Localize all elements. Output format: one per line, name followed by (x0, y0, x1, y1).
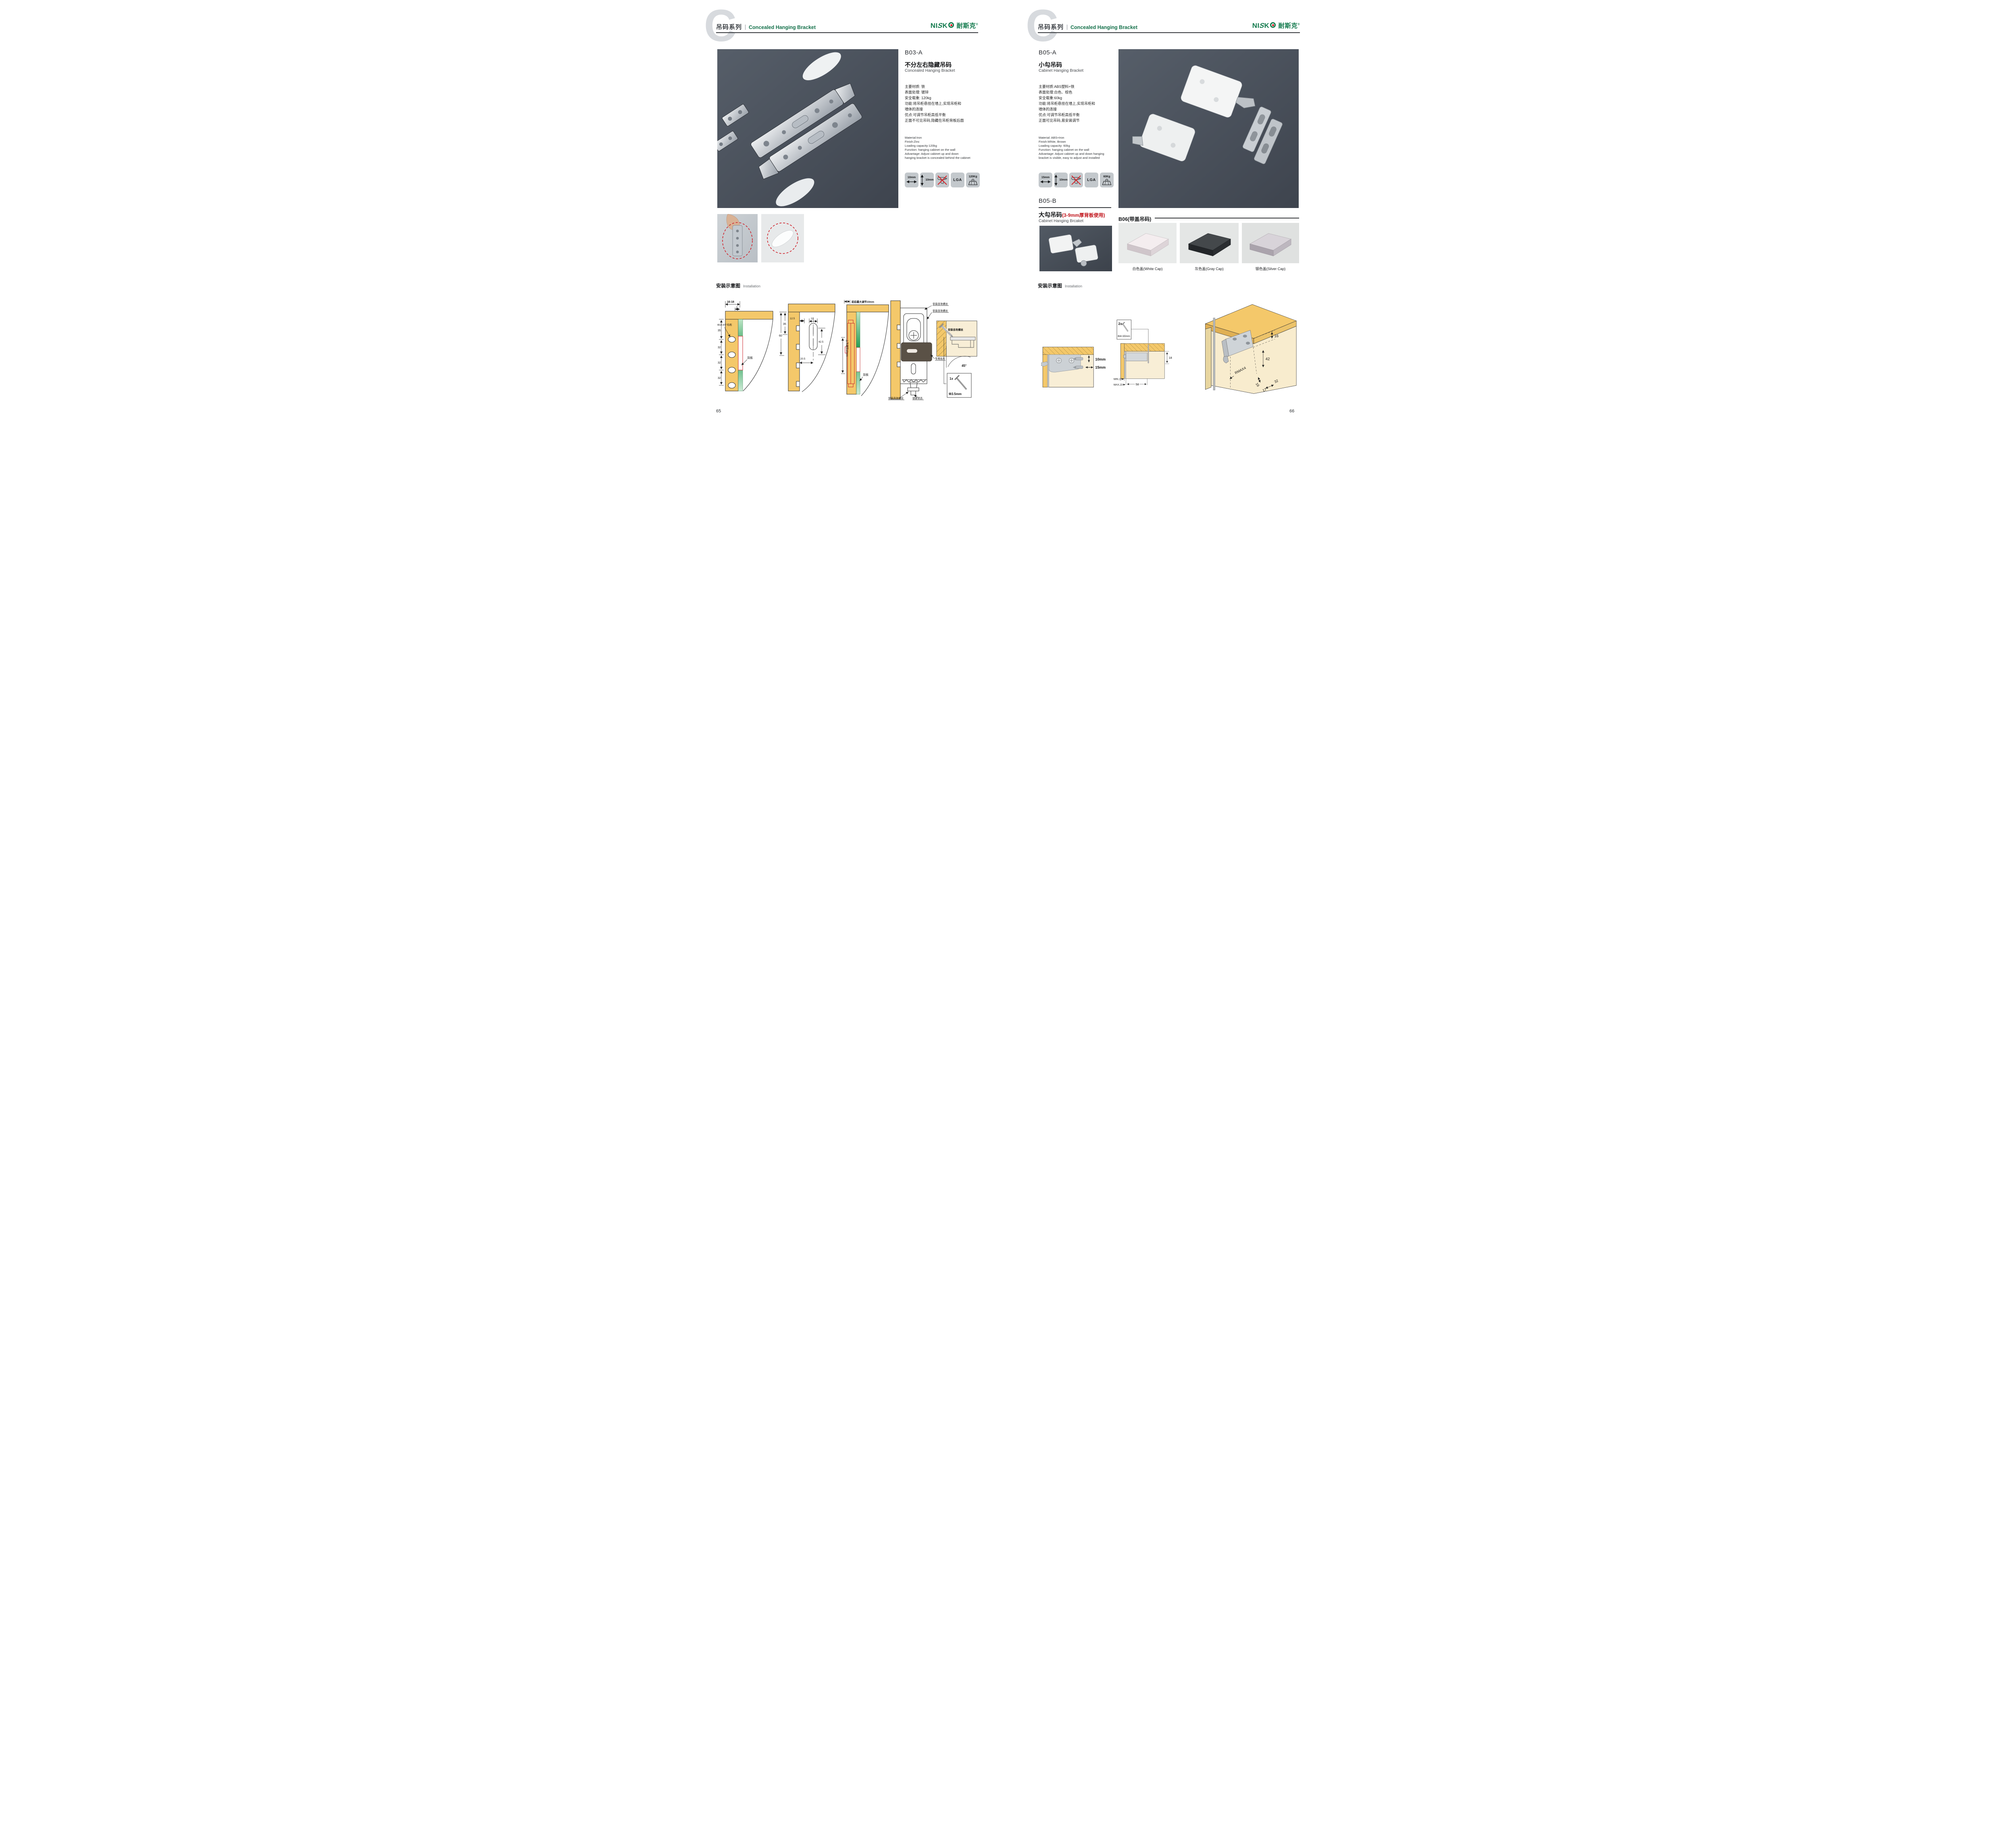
lga-label: LGA (1087, 178, 1096, 182)
diagram-section-holes: 16-18 5 35 32 32 32 Φ10-4个均布 背板 (717, 299, 774, 399)
icon-max-load: 120Kg (966, 173, 980, 187)
cap-photo-white (1118, 223, 1177, 263)
diagram-side-adjust: 10mm 15mm (1041, 341, 1109, 389)
inset-screw-label: 安装自攻螺丝 (948, 328, 963, 331)
plate-label: 专用挂片 (935, 357, 945, 360)
page-number-left: 65 (716, 409, 721, 414)
logo-cn: 耐斯克 (1278, 23, 1297, 29)
series-title-en: Concealed Hanging Bracket (1070, 25, 1137, 30)
dim-label: 5 (736, 306, 738, 309)
thumb-cap-photo (761, 214, 804, 262)
spec-line: 表面处理: 镀锌 (905, 89, 964, 95)
dim-label: 12 (811, 317, 814, 320)
cap-photo-silver (1242, 223, 1299, 263)
vertical-arrow-icon (1054, 175, 1058, 186)
specs-cn: 主要材质:ABS塑料+铁 表面处理:白色、棕色 安全载重:60kg 功能:将吊柜… (1039, 84, 1095, 123)
spec-line: Material: ABS+Iron (1039, 136, 1104, 140)
diagram-adjust-range: 前后最大调节10mm 上下调节10mm 背板 (841, 299, 890, 399)
b06-rule (1155, 218, 1299, 218)
logo-o-icon (1270, 22, 1276, 28)
vertical-arrow-icon (920, 175, 924, 186)
icon-no-drill (1069, 173, 1083, 187)
product-code: B03-A (905, 49, 923, 56)
spec-line: 优点:可调节吊柜高低平衡 (1039, 112, 1095, 118)
icon-width-adjust: 15mm (1039, 173, 1052, 187)
product-code: B05-B (1039, 198, 1056, 204)
dim-label: 42 (1266, 357, 1270, 362)
no-drill-icon (1070, 175, 1082, 186)
product-info-b05b: B05-B 大勾吊码(3-9mm厚背板使用) Cabinet Hanging B… (1039, 198, 1123, 224)
dim-label: 16-18 (727, 301, 734, 304)
qty-label: 1x (950, 377, 953, 381)
spec-line: 正面不可见吊码,隐藏在吊柜背板后面 (905, 118, 964, 123)
spec-line: bracket is visible, easy to adjust and i… (1039, 156, 1104, 160)
b06-title: B06(带盖吊码) (1118, 215, 1151, 223)
spec-line: 墙体的连接 (905, 106, 964, 112)
icon-width-adjust: 10mm (905, 173, 918, 187)
installation-en: Installation (743, 284, 760, 288)
product-photo-b05b (1039, 226, 1112, 271)
spec-line: Loading capacity: 60kg (1039, 144, 1104, 148)
cap-label-gray: 灰色盖(Gray Cap) (1180, 266, 1239, 271)
screw-spec: Φ4×30mm (1118, 335, 1131, 338)
cap-label-silver: 银色盖(Silver Cap) (1242, 266, 1299, 271)
installation-en: Installation (1065, 284, 1082, 288)
lga-label: LGA (953, 178, 962, 182)
spec-line: 优点:可调节吊柜高低平衡 (905, 112, 964, 118)
dim-label: 18 (1169, 356, 1172, 360)
note-label: 前后最大调节10mm (852, 300, 874, 304)
spec-line: Finish:White, Brown (1039, 140, 1104, 144)
horizontal-arrow-icon (906, 180, 917, 184)
product-code: B05-A (1039, 49, 1056, 56)
diagram-isometric-install: 16 42 RMAX4 16 32 17 (1198, 300, 1298, 394)
dia-label: Φ3.5mm (949, 392, 962, 396)
horizontal-arrow-icon (1040, 180, 1051, 184)
product-photo-b05a (1118, 49, 1299, 208)
screw-label: 安装自攻螺丝 (933, 302, 948, 306)
dim-label: 42.5 (818, 341, 824, 343)
backboard-label: 背板 (863, 373, 868, 376)
product-name-cn: 大勾吊码(3-9mm厚背板使用) (1039, 210, 1105, 219)
brand-logo-left: NISK耐斯克® (910, 21, 978, 30)
spec-line: Function: hanging cabinet on the wall (905, 148, 971, 152)
logo-o-icon (948, 22, 954, 28)
backboard-note: (3-9mm厚背板使用) (1062, 212, 1105, 218)
dim-label: 20.5 (800, 358, 806, 360)
spec-line: 功能:将吊柜悬挂在墙上,实现吊柜和 (1039, 101, 1095, 106)
installation-cn: 安装示意图 (716, 283, 740, 289)
spec-line: hanging bracket is concealed behind the … (905, 156, 971, 160)
spec-line: 表面处理:白色、棕色 (1039, 89, 1095, 95)
width-value: 10mm (908, 176, 916, 179)
spec-line: Function: hanging cabinet on the wall (1039, 148, 1104, 152)
feature-icons-b05a: 15mm 10mm LGA 60Kg (1039, 173, 1114, 187)
spec-line: 墙体的连接 (1039, 106, 1095, 112)
dim-label: 32 (718, 377, 721, 380)
spec-line: 主要材质:ABS塑料+铁 (1039, 84, 1095, 89)
spec-line: 安全载重: 120kg (905, 95, 964, 101)
spec-line: 安全载重:60kg (1039, 95, 1095, 101)
spec-line: 主要材质: 铁 (905, 84, 964, 89)
spec-line: Advantage: Adjust cabinet up and down ha… (1039, 152, 1104, 156)
registered-mark: ® (976, 23, 978, 26)
width-value: 15mm (1041, 176, 1050, 179)
spec-line: 功能:将吊柜悬挂在墙上,实现吊柜和 (905, 101, 964, 106)
backboard-label: 背板 (747, 356, 753, 360)
spec-line: Material:Iron (905, 136, 971, 140)
dim-label: MAX.23 (1114, 383, 1123, 386)
specs-cn: 主要材质: 铁 表面处理: 镀锌 安全载重: 120kg 功能:将吊柜悬挂在墙上… (905, 84, 964, 123)
icon-max-load: 60Kg (1100, 173, 1114, 187)
spec-line: Finish:Zinc (905, 140, 971, 144)
product-name-cn: 小勾吊码 (1039, 60, 1062, 69)
icon-no-drill (935, 173, 949, 187)
logo-red-dot-icon (1272, 24, 1274, 26)
dim-label: 32 (718, 346, 721, 349)
screw-label: 安装自攻螺丝 (933, 309, 948, 312)
page-header-left: 吊码系列Concealed Hanging Bracket (716, 23, 816, 31)
logo-cn: 耐斯克 (956, 23, 976, 29)
dim-label: 32 (718, 362, 721, 364)
product-name-en: Concealed Hanging Bracket (905, 69, 955, 73)
spec-line: Loading capacity:120kg (905, 144, 971, 148)
dim-label: 10mm (1095, 357, 1106, 361)
series-title-cn: 吊码系列 (716, 24, 742, 31)
page-header-right: 吊码系列Concealed Hanging Bracket (1038, 23, 1137, 31)
header-rule-right (1038, 32, 1300, 33)
dim-label: 58 (1135, 383, 1139, 386)
holes-label: Φ10-4个均布 (717, 323, 732, 327)
note-label: 上下调节10mm (846, 339, 849, 357)
lock-label: 锁紧状态 (912, 396, 923, 400)
height-value: 10mm (925, 179, 933, 181)
dim-label: 60 (779, 335, 782, 337)
load-value: 120Kg (968, 175, 977, 178)
angle-label: 45° (962, 364, 966, 368)
weight-icon (968, 179, 978, 185)
icon-height-adjust: 10mm (1054, 173, 1068, 187)
icon-height-adjust: 10mm (920, 173, 934, 187)
qty-label: 2x (1118, 322, 1122, 326)
series-title-cn: 吊码系列 (1038, 24, 1064, 31)
diagram-screw-section: 2x Φ4×30mm 18 MIN.10 MAX.23 58 (1114, 318, 1173, 387)
thumb-install-photo (717, 214, 758, 262)
diagram-front-view-and-screw-inset: 安装自攻螺丝 安装自攻螺丝 专用挂片 安装自攻螺丝 锁紧状态 安装自攻螺丝 45… (887, 298, 979, 401)
spec-line: 正面可见吊码,易安装调节 (1039, 118, 1095, 123)
product-photo-b03a (717, 49, 898, 208)
dim-label: 15mm (1095, 365, 1106, 369)
installation-cn: 安装示意图 (1038, 283, 1062, 289)
logo-red-dot-icon (950, 24, 952, 26)
specs-en: Material:Iron Finish:Zinc Loading capaci… (905, 136, 971, 160)
header-divider (1067, 25, 1067, 30)
brand-logo-right: NISK耐斯克® (1231, 21, 1300, 30)
installation-title-right: 安装示意图Installation (1038, 282, 1082, 289)
installation-title-left: 安装示意图Installation (716, 282, 760, 289)
dim-label: 35 (718, 329, 721, 332)
weight-icon (1102, 179, 1112, 185)
registered-mark: ® (1297, 23, 1300, 26)
dim-label: 16 (1275, 334, 1279, 339)
dim-label: 35 (783, 323, 786, 326)
spec-line: Advantage: Adjust cabinet up and down (905, 152, 971, 156)
no-drill-icon (937, 175, 948, 186)
product-name-cn: 不分左右隐藏吊码 (905, 60, 952, 69)
dim-label: MIN.10 (1114, 378, 1122, 381)
series-title-en: Concealed Hanging Bracket (749, 25, 816, 30)
specs-en: Material: ABS+Iron Finish:White, Brown L… (1039, 136, 1104, 160)
diagram-slot-detail: 60 35 12.5 12 42.5 20.5 (779, 299, 837, 399)
cap-photo-gray (1180, 223, 1239, 263)
header-rule-left (716, 32, 978, 33)
product-name-en: Cabinet Hanging Brcaket (1039, 219, 1083, 223)
catalog-spread: C 吊码系列Concealed Hanging Bracket NISK耐斯克® (692, 0, 1324, 432)
icon-lga-cert: LGA (951, 173, 964, 187)
product-info-b03a: B03-A 不分左右隐藏吊码 Concealed Hanging Bracket… (905, 49, 980, 243)
height-value: 10mm (1059, 179, 1067, 181)
b05b-rule (1039, 207, 1111, 208)
dim-label: 12.5 (790, 317, 795, 320)
feature-icons-b03a: 10mm 10mm LGA 120Kg (905, 173, 980, 187)
cap-label-white: 白色盖(White Cap) (1118, 266, 1177, 271)
product-name-en: Cabinet Hanging Bracket (1039, 69, 1083, 73)
icon-lga-cert: LGA (1085, 173, 1098, 187)
load-value: 60Kg (1103, 175, 1110, 178)
header-divider (745, 25, 746, 30)
page-number-right: 66 (1289, 409, 1294, 414)
